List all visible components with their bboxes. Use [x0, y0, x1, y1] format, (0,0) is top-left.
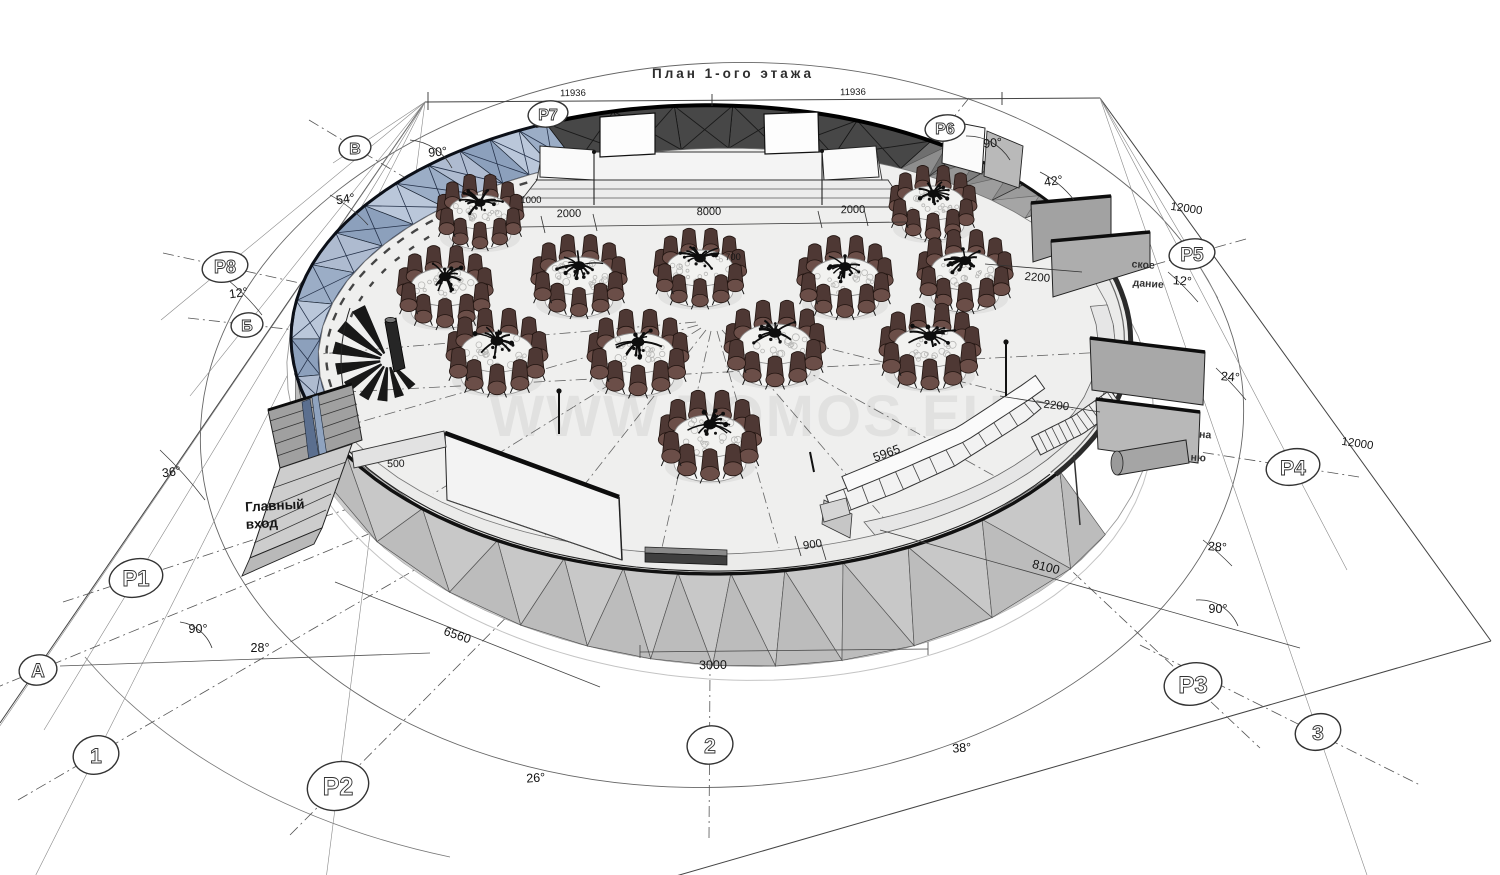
- svg-text:12°: 12°: [1172, 273, 1192, 289]
- svg-text:1: 1: [90, 745, 102, 768]
- svg-text:11936: 11936: [560, 88, 586, 99]
- svg-text:Р8: Р8: [214, 257, 236, 277]
- svg-text:дание: дание: [1132, 277, 1164, 291]
- svg-text:вход: вход: [245, 515, 278, 532]
- svg-text:11936: 11936: [840, 87, 866, 98]
- svg-text:2200: 2200: [1024, 271, 1051, 285]
- svg-text:28°: 28°: [251, 641, 270, 655]
- svg-text:1000: 1000: [520, 195, 541, 206]
- svg-text:Б: Б: [241, 318, 253, 335]
- svg-text:Главный: Главный: [245, 496, 305, 514]
- svg-text:Р6: Р6: [935, 121, 955, 138]
- svg-text:А: А: [31, 661, 45, 682]
- svg-text:Р2: Р2: [323, 773, 354, 801]
- svg-text:2000: 2000: [841, 204, 866, 216]
- svg-text:500: 500: [387, 458, 405, 471]
- svg-text:2: 2: [704, 735, 716, 758]
- svg-text:700: 700: [725, 252, 741, 263]
- svg-text:8000: 8000: [697, 206, 722, 218]
- svg-text:2000: 2000: [557, 208, 582, 220]
- svg-text:План 1-ого этажа: План 1-ого этажа: [652, 66, 814, 81]
- svg-text:на: на: [1199, 429, 1212, 442]
- svg-text:26°: 26°: [526, 770, 546, 785]
- svg-text:36°: 36°: [161, 464, 182, 480]
- svg-text:В: В: [349, 141, 361, 158]
- svg-text:Р1: Р1: [123, 566, 150, 591]
- svg-text:ское: ское: [1131, 258, 1155, 272]
- svg-text:Р7: Р7: [538, 107, 558, 124]
- svg-text:ню: ню: [1190, 451, 1206, 464]
- svg-text:3000: 3000: [699, 658, 727, 672]
- svg-text:12°: 12°: [228, 285, 249, 301]
- svg-text:Р5: Р5: [1180, 245, 1204, 266]
- svg-text:3: 3: [1312, 722, 1324, 745]
- svg-text:Р3: Р3: [1178, 672, 1207, 699]
- svg-text:38°: 38°: [952, 740, 972, 755]
- svg-text:Р4: Р4: [1280, 457, 1306, 480]
